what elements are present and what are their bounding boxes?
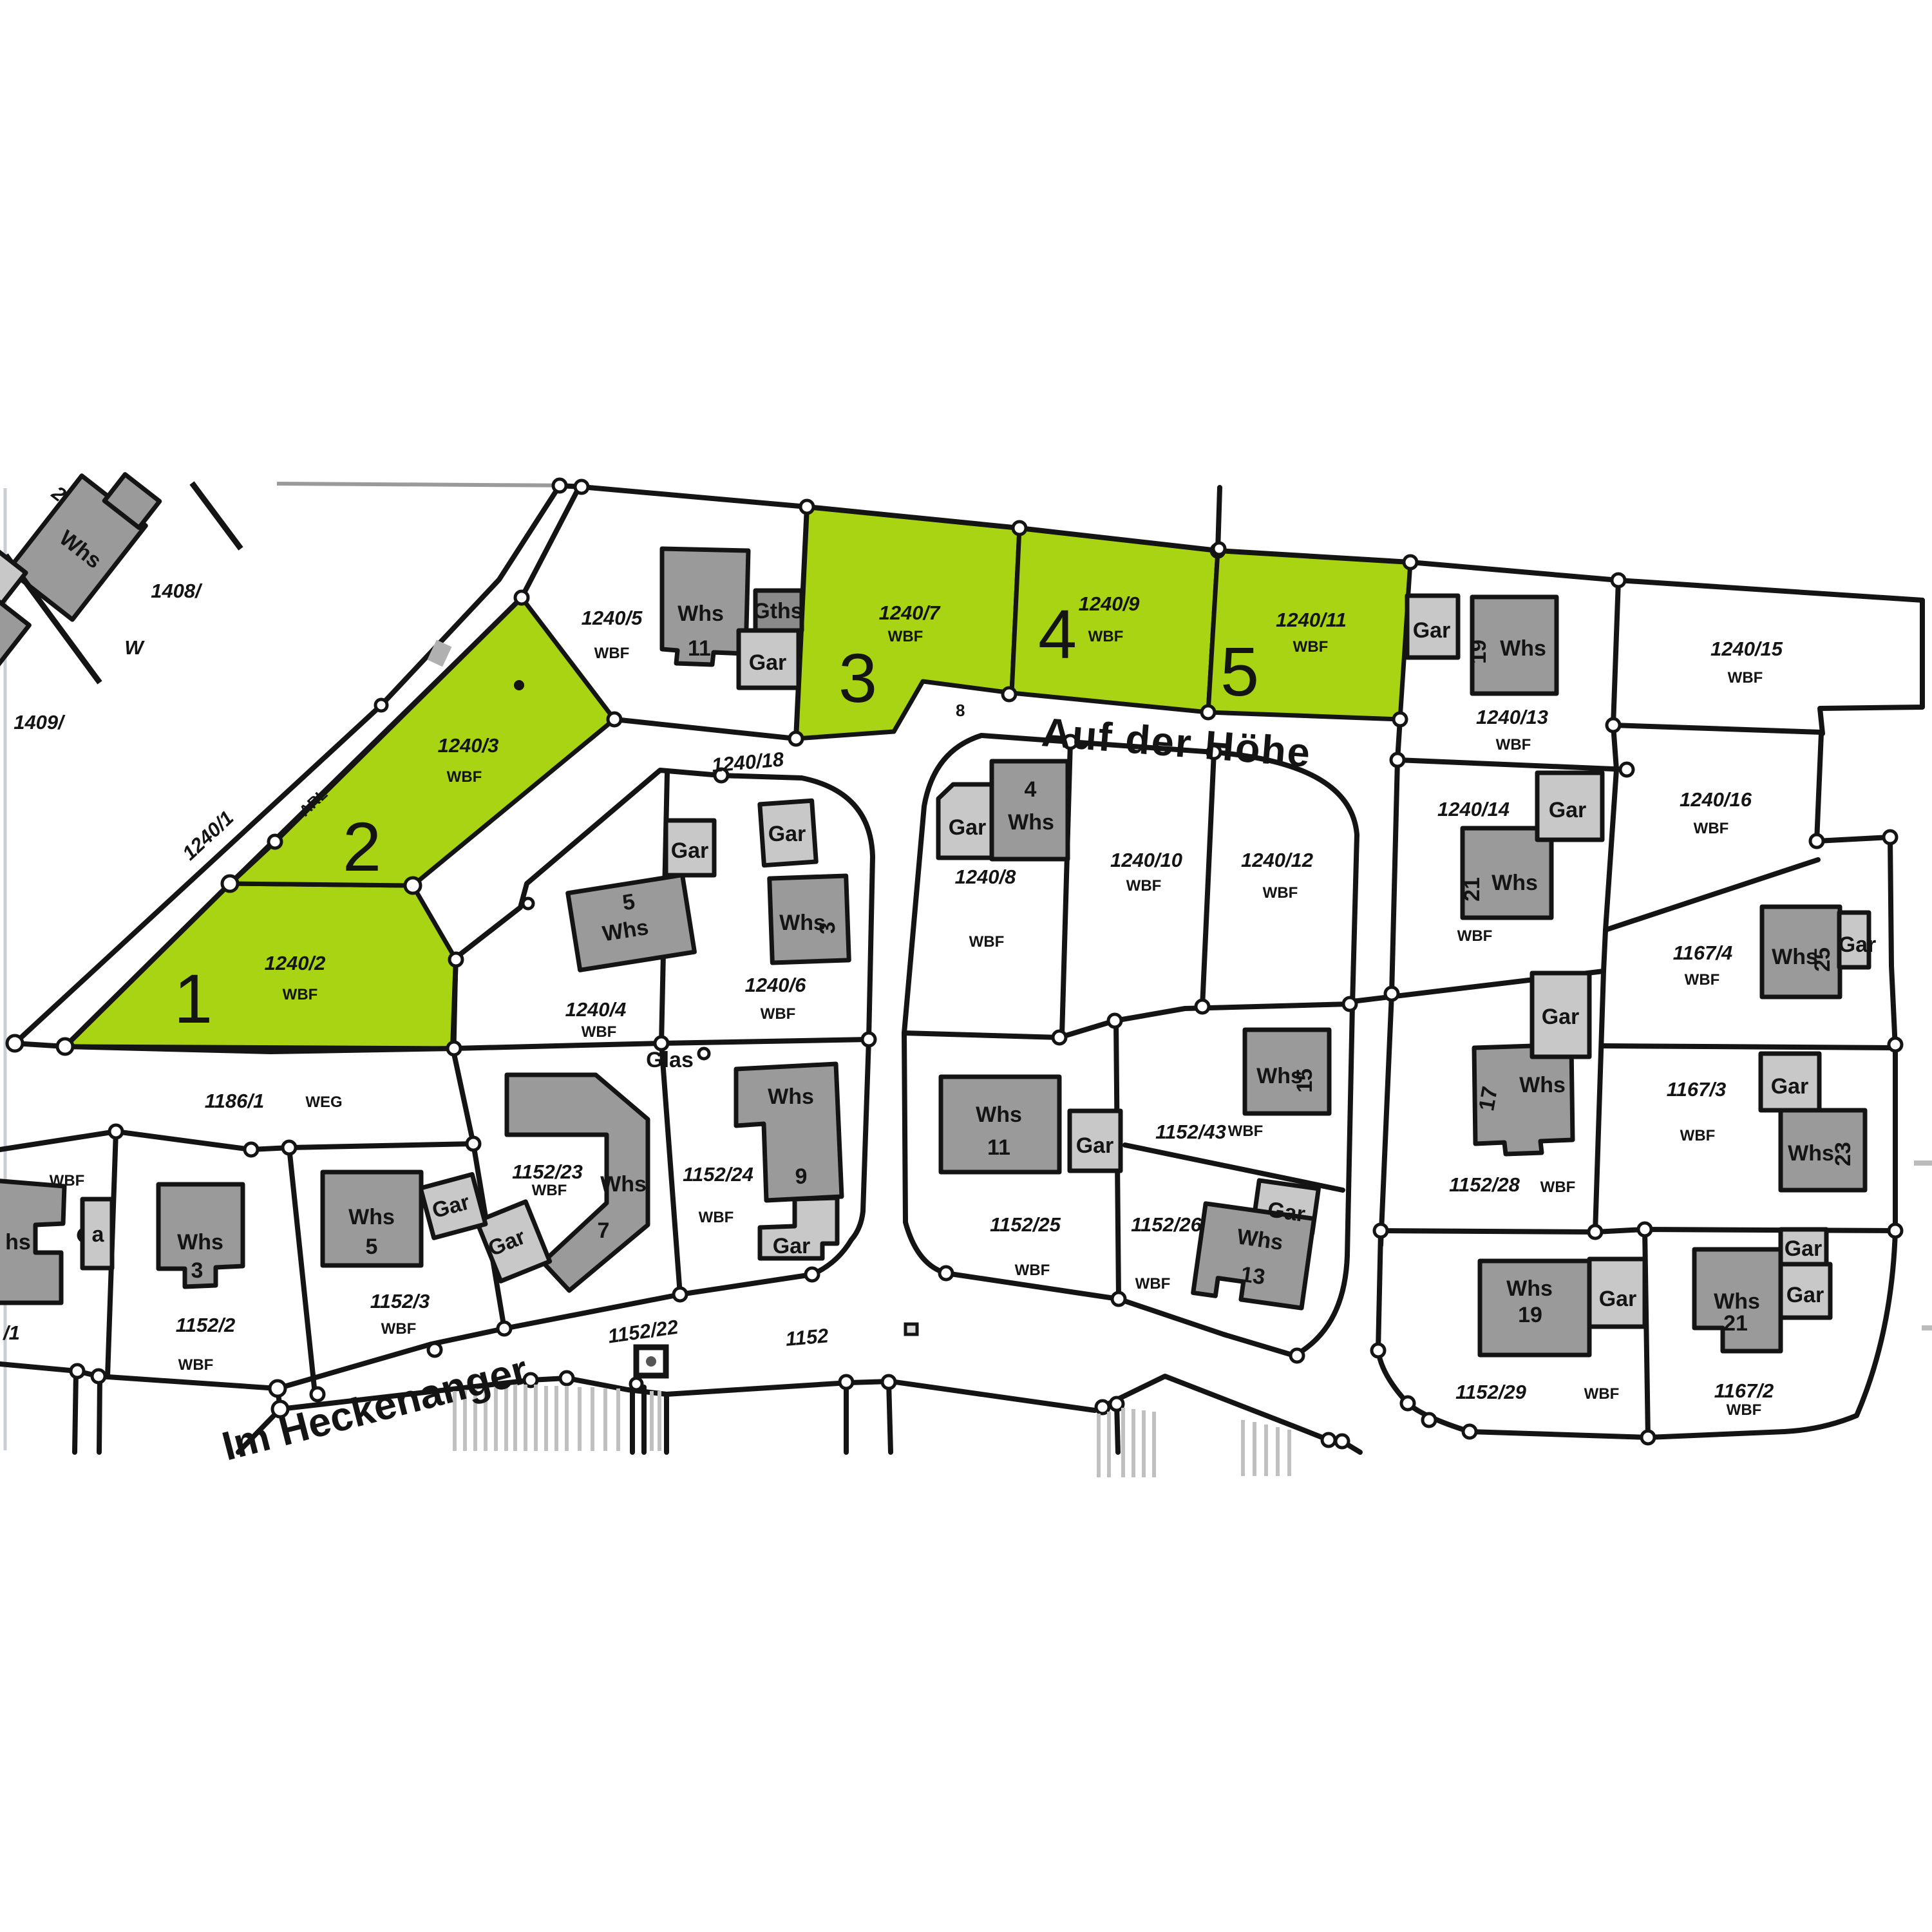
svg-text:Gar: Gar (768, 822, 806, 846)
svg-text:Gar: Gar (1266, 1197, 1307, 1227)
svg-text:Whs: Whs (1788, 1141, 1834, 1166)
svg-text:1240/10: 1240/10 (1110, 849, 1182, 871)
svg-text:1240/11: 1240/11 (1276, 609, 1347, 631)
svg-text:Whs: Whs (177, 1230, 223, 1255)
svg-text:a: a (92, 1222, 105, 1247)
svg-text:1186/1: 1186/1 (205, 1090, 265, 1112)
svg-text:WBF: WBF (1135, 1275, 1171, 1293)
svg-text:Whs: Whs (600, 1172, 647, 1197)
svg-text:1240/15: 1240/15 (1710, 638, 1783, 660)
svg-text:3: 3 (838, 639, 877, 717)
svg-text:1240/6: 1240/6 (745, 974, 807, 996)
svg-text:1240/9: 1240/9 (1079, 592, 1141, 615)
svg-text:WBF: WBF (1694, 820, 1729, 837)
svg-text:/1: /1 (2, 1321, 20, 1344)
svg-text:25: 25 (1810, 947, 1835, 972)
svg-text:WBF: WBF (1727, 1401, 1762, 1419)
svg-text:WBF: WBF (1088, 628, 1124, 645)
svg-text:Gar: Gar (1786, 1283, 1824, 1307)
svg-text:Gar: Gar (1076, 1133, 1114, 1158)
svg-text:8: 8 (956, 701, 965, 720)
svg-text:WBF: WBF (532, 1182, 567, 1199)
svg-text:WBF: WBF (594, 645, 630, 662)
svg-text:1167/4: 1167/4 (1673, 942, 1733, 964)
svg-text:Whs: Whs (1492, 871, 1538, 895)
svg-text:23: 23 (1831, 1142, 1855, 1166)
svg-text:1152/24: 1152/24 (683, 1163, 753, 1186)
svg-text:WBF: WBF (969, 933, 1005, 951)
svg-text:hs: hs (5, 1230, 31, 1255)
svg-text:1408/: 1408/ (151, 580, 203, 602)
svg-text:3: 3 (815, 921, 840, 935)
svg-text:WBF: WBF (1126, 877, 1162, 895)
svg-text:1240/12: 1240/12 (1241, 849, 1313, 871)
svg-text:Whs: Whs (1506, 1276, 1553, 1301)
svg-text:WBF: WBF (1496, 736, 1531, 753)
svg-text:WEG: WEG (305, 1094, 342, 1111)
svg-text:1240/2: 1240/2 (265, 952, 326, 974)
svg-text:WBF: WBF (888, 628, 923, 645)
svg-text:WBF: WBF (1685, 971, 1720, 989)
svg-text:1240/13: 1240/13 (1476, 706, 1548, 728)
svg-text:3: 3 (191, 1258, 204, 1283)
svg-text:WBF: WBF (1015, 1262, 1050, 1279)
svg-text:1240/8: 1240/8 (955, 866, 1017, 888)
svg-text:Whs: Whs (976, 1103, 1022, 1127)
svg-text:Whs: Whs (677, 601, 724, 626)
svg-text:WBF: WBF (699, 1209, 734, 1226)
svg-text:Gar: Gar (1839, 933, 1877, 957)
svg-text:11: 11 (987, 1135, 1010, 1160)
svg-text:1240/4: 1240/4 (565, 998, 627, 1021)
svg-text:WBF: WBF (761, 1005, 796, 1023)
svg-text:WBF: WBF (1584, 1385, 1620, 1403)
svg-text:Gths: Gths (753, 599, 802, 623)
svg-text:Gar: Gar (1785, 1236, 1823, 1261)
svg-text:WBF: WBF (283, 986, 318, 1003)
svg-text:1167/3: 1167/3 (1667, 1078, 1727, 1101)
svg-text:Gar: Gar (1413, 618, 1451, 643)
svg-text:WBF: WBF (1540, 1179, 1576, 1196)
svg-text:Gar: Gar (749, 650, 787, 675)
svg-text:1: 1 (174, 960, 213, 1037)
svg-text:WBF: WBF (447, 768, 482, 786)
svg-text:WBF: WBF (1228, 1122, 1264, 1140)
svg-text:Gar: Gar (1599, 1287, 1637, 1311)
svg-text:Whs: Whs (1500, 636, 1546, 661)
svg-text:19: 19 (1466, 639, 1491, 664)
svg-text:1152/25: 1152/25 (990, 1213, 1061, 1236)
svg-text:9: 9 (795, 1164, 808, 1189)
svg-text:Whs: Whs (1714, 1289, 1760, 1314)
svg-text:1240/3: 1240/3 (438, 734, 499, 757)
svg-text:Whs: Whs (1519, 1073, 1566, 1097)
svg-text:1152: 1152 (784, 1324, 829, 1350)
svg-text:4: 4 (1025, 777, 1037, 802)
svg-text:1152/43: 1152/43 (1155, 1121, 1226, 1143)
svg-text:7: 7 (598, 1218, 610, 1243)
svg-text:11: 11 (688, 636, 711, 661)
svg-text:Gar: Gar (949, 815, 987, 840)
svg-text:Gar: Gar (671, 838, 709, 863)
svg-text:WBF: WBF (1680, 1127, 1716, 1144)
svg-text:Whs: Whs (1008, 810, 1054, 835)
svg-text:1152/2: 1152/2 (176, 1314, 236, 1336)
svg-text:1240/7: 1240/7 (879, 601, 942, 624)
svg-text:1240/16: 1240/16 (1680, 788, 1752, 811)
svg-text:Whs: Whs (348, 1205, 395, 1229)
svg-text:1409/: 1409/ (14, 711, 66, 734)
svg-text:WBF: WBF (1457, 927, 1493, 945)
svg-text:Whs: Whs (768, 1084, 814, 1109)
svg-text:17: 17 (1474, 1084, 1502, 1113)
svg-text:5: 5 (1220, 632, 1259, 710)
svg-text:1240/14: 1240/14 (1437, 798, 1510, 820)
svg-text:1152/3: 1152/3 (370, 1290, 430, 1312)
svg-text:WBF: WBF (1728, 669, 1763, 687)
svg-text:WBF: WBF (582, 1023, 617, 1041)
svg-text:15: 15 (1293, 1068, 1317, 1093)
svg-text:1167/2: 1167/2 (1714, 1379, 1774, 1402)
svg-text:Gar: Gar (1771, 1074, 1809, 1099)
svg-text:WBF: WBF (381, 1320, 417, 1338)
svg-text:1152/23: 1152/23 (512, 1160, 583, 1183)
svg-text:1240/5: 1240/5 (582, 607, 643, 629)
svg-text:Gar: Gar (1542, 1005, 1580, 1029)
svg-text:4: 4 (1038, 595, 1077, 673)
svg-text:5: 5 (366, 1235, 378, 1259)
svg-text:1152/26: 1152/26 (1131, 1213, 1202, 1236)
svg-text:Gar: Gar (1549, 798, 1587, 822)
svg-text:Gar: Gar (773, 1234, 811, 1258)
svg-text:W: W (124, 636, 145, 659)
svg-text:WBF: WBF (178, 1356, 214, 1374)
svg-text:21: 21 (1723, 1311, 1748, 1336)
svg-text:WBF: WBF (1293, 638, 1329, 656)
svg-text:1152/29: 1152/29 (1455, 1381, 1527, 1403)
svg-text:1152/28: 1152/28 (1449, 1173, 1520, 1196)
svg-text:19: 19 (1518, 1303, 1542, 1327)
svg-text:13: 13 (1239, 1262, 1267, 1290)
svg-text:2: 2 (343, 808, 381, 885)
svg-text:WBF: WBF (1263, 884, 1298, 902)
svg-text:21: 21 (1460, 877, 1484, 902)
svg-text:WBF: WBF (50, 1172, 85, 1189)
svg-text:Glas: Glas (646, 1048, 694, 1072)
